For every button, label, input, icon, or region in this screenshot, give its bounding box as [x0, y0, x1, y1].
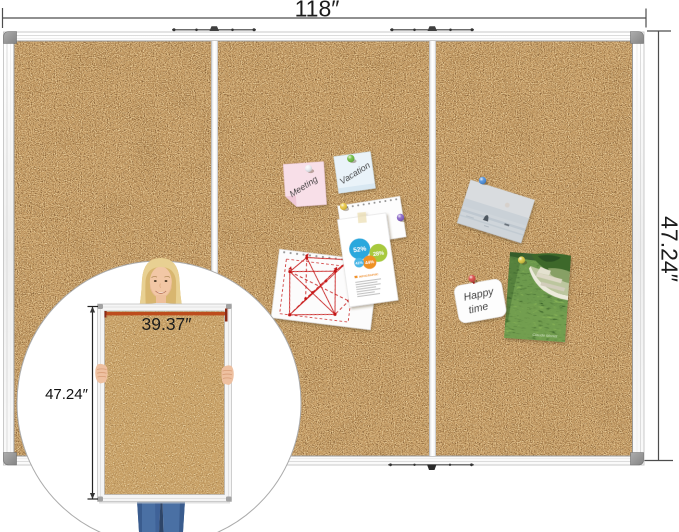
svg-text:47.24″: 47.24″ [45, 386, 89, 403]
svg-text:39.37″: 39.37″ [142, 314, 192, 334]
svg-text:47.24″: 47.24″ [657, 216, 679, 282]
svg-text:118″: 118″ [295, 0, 340, 22]
